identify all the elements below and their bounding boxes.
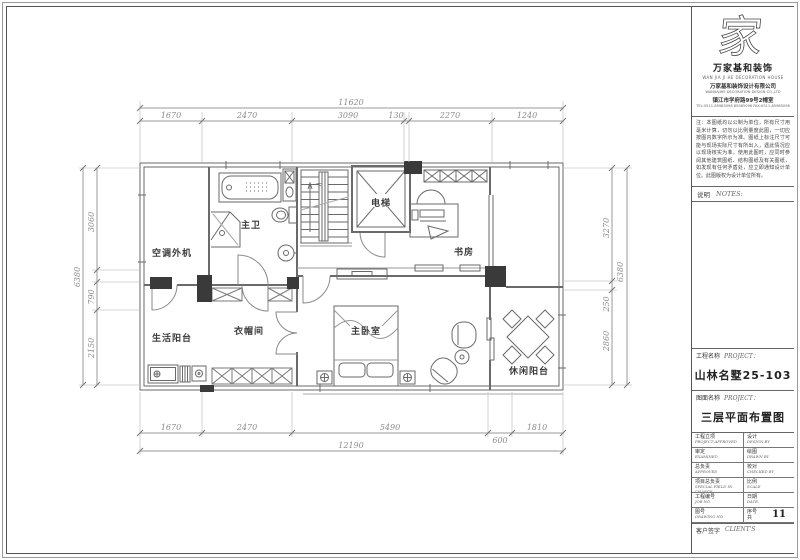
room-label-study: 书房 — [454, 246, 474, 258]
leisure-balcony-furniture — [503, 310, 554, 364]
client-label: 客户签字 — [696, 526, 720, 535]
room-label-living-balcony: 生活阳台 — [152, 332, 192, 344]
dim-top-seg: 2470 — [236, 111, 257, 120]
dim-right-total: 6380 — [616, 262, 625, 282]
dim-top-seg: 3090 — [338, 111, 358, 120]
dim-right-seg: 250 — [602, 296, 611, 312]
project-name-value: 山林名墅25-103 — [692, 360, 794, 390]
dining-table — [507, 316, 549, 358]
company-tel: TEL:0511-85985098 85985096 FAX:0511-8598… — [696, 104, 790, 108]
wash-basin — [278, 245, 294, 261]
dim-left-seg: 3060 — [87, 212, 96, 232]
dim-left-total: 6380 — [73, 267, 82, 287]
drawing-name-value: 三层平面布置图 — [692, 402, 794, 432]
dim-bottom-seg: 5490 — [380, 423, 400, 432]
dim-top-seg: 2270 — [439, 111, 460, 120]
room-label-master-bedroom: 主卧室 — [351, 325, 381, 337]
dim-top-seg: 1240 — [517, 111, 537, 120]
room-label-cloakroom: 衣帽间 — [234, 325, 264, 337]
company-logo-block: 家 万家基和装饰 WAN JIA JI HE DECORATION HOUSE … — [692, 7, 794, 117]
dim-top-total: 11620 — [338, 98, 363, 107]
project-name-field: 工程名称 PROJECT： 山林名墅25-103 — [692, 348, 794, 390]
room-label-leisure-balcony: 休闲阳台 — [508, 365, 549, 377]
living-balcony-fixtures — [148, 365, 206, 383]
grid-cell: 比例SCALE — [744, 478, 794, 493]
bedroom-furniture — [317, 269, 476, 389]
armchair — [452, 322, 476, 348]
dim-top-seg: 1670 — [161, 111, 181, 120]
title-block: 家 万家基和装饰 WAN JIA JI HE DECORATION HOUSE … — [691, 7, 794, 553]
notes-paragraph: 注：本图纸均以公制为单位，所有尺寸用毫米计算，切勿以比例量度此图，一切应按图内数… — [692, 117, 794, 187]
dim-bottom-total: 12190 — [338, 441, 363, 450]
dim-right-seg: 3270 — [602, 218, 611, 238]
grid-cell: 项目总负责SPECIAL FIELD IN CHARGE — [692, 478, 744, 493]
grid-cell: 校对CHECKED BY — [744, 463, 794, 478]
dim-left-seg: 2150 — [87, 338, 96, 359]
toilet — [289, 207, 297, 223]
grid-cell: 图号DRAWING NO — [692, 508, 744, 523]
grid-cell: 绘图DRAWN BY — [744, 448, 794, 463]
notes-label-row: 说明 NOTES: — [692, 187, 794, 202]
room-label-elevator: 电梯 — [371, 197, 391, 209]
company-logo-icon: 家 — [715, 10, 771, 60]
notes-empty-area — [692, 202, 794, 348]
company-full-name: 万家基和装饰设计有限公司 — [710, 82, 776, 90]
grid-cell: 日期DATE — [744, 493, 794, 508]
washing-machine — [192, 366, 206, 381]
dim-bottom-seg: 1670 — [161, 423, 181, 432]
sheet-number-cell: 序号 共 11 — [744, 508, 794, 523]
notes-label: 说明 — [697, 189, 710, 199]
grid-cell: 工程编号JOB NO — [692, 493, 744, 508]
dim-left-seg: 790 — [87, 289, 96, 304]
dim-right-seg: 2860 — [602, 331, 611, 352]
desk-chair — [417, 190, 445, 204]
grid-cell: 工程立项PROJECT APPROVED — [692, 433, 744, 448]
bed — [334, 306, 398, 386]
dim-top-seg: 130 — [388, 111, 403, 120]
sheet-number: 11 — [772, 509, 786, 520]
company-full-name-en: WANJIAJIHE DECORATION DESIGN CO.,LTD — [705, 90, 780, 94]
svg-text:家: 家 — [715, 12, 764, 60]
dim-bottom-seg: 600 — [492, 436, 507, 445]
signature-grid: 工程立项PROJECT APPROVED 设计DESIGN BY 审定EXAMI… — [692, 432, 794, 523]
dim-bottom-seg: 1810 — [527, 423, 547, 432]
drawing-label: 图面名称 — [696, 393, 720, 402]
notes-label-en: NOTES: — [716, 190, 743, 198]
client-signature-field: 客户签字 CLIENT'S — [692, 523, 794, 553]
dim-bottom-seg: 2470 — [236, 423, 257, 432]
company-address: 镇江市学府路99号2幢室 — [713, 96, 774, 104]
floor-plan: 下 — [0, 0, 800, 560]
grid-cell: 审定EXAMINED — [692, 448, 744, 463]
room-label-ac-outdoor: 空调外机 — [152, 247, 192, 259]
armchair — [426, 353, 461, 388]
project-label-en: PROJECT： — [724, 351, 759, 360]
bathroom-fixtures — [211, 169, 297, 261]
company-name-en: WAN JIA JI HE DECORATION HOUSE — [702, 75, 783, 80]
drawing-label-en: PROJECT： — [724, 393, 759, 402]
project-label: 工程名称 — [696, 351, 720, 360]
staircase: 下 — [301, 170, 348, 243]
drawing-sheet: 下 — [0, 0, 800, 560]
company-name: 万家基和装饰 — [713, 61, 773, 74]
grid-cell: 设计DESIGN BY — [744, 433, 794, 448]
dimension-labels: 11620 1670 2470 3090 130 2270 1240 1670 … — [73, 98, 625, 450]
drawing-name-field: 图面名称 PROJECT： 三层平面布置图 — [692, 390, 794, 432]
client-label-en: CLIENT'S — [725, 526, 755, 533]
grid-cell: 总负责APPROVED — [692, 463, 744, 478]
study-furniture — [410, 170, 487, 239]
room-label-master-bath: 主卫 — [241, 219, 261, 231]
stair-direction-label: 下 — [316, 183, 322, 190]
